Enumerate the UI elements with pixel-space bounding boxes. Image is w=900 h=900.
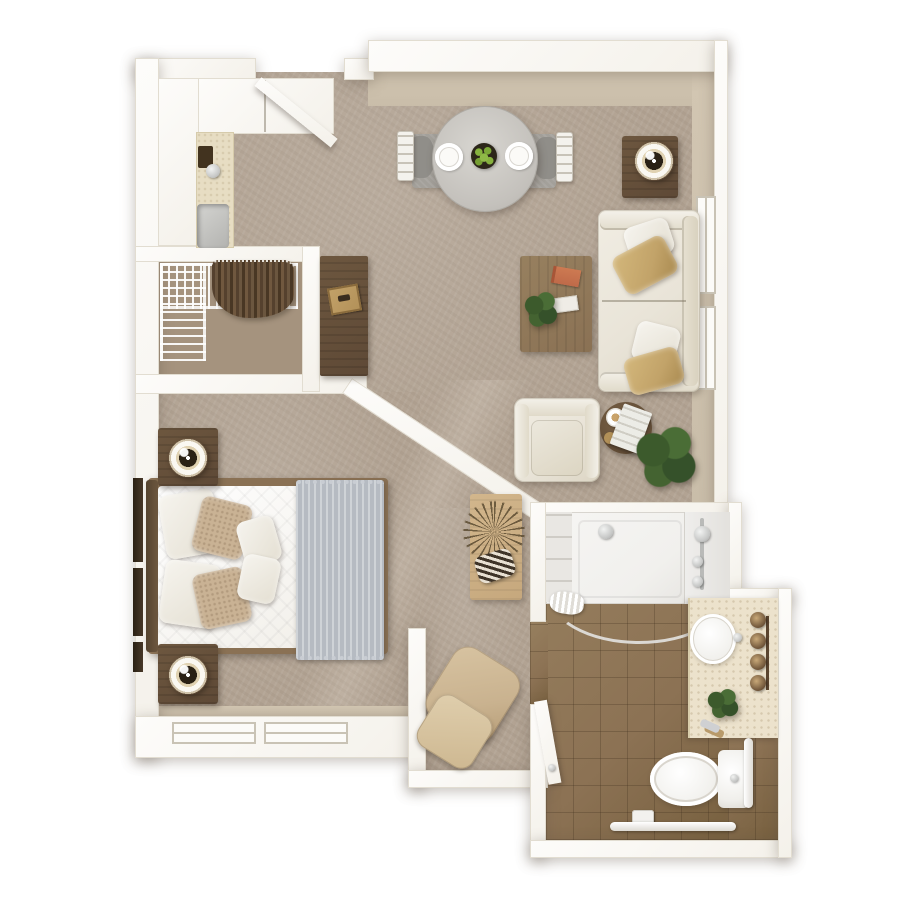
vanity-faucet bbox=[733, 633, 742, 642]
wall-art-frame-3 bbox=[133, 642, 143, 672]
coffee-table-plant bbox=[524, 290, 558, 330]
shower-drain bbox=[598, 524, 613, 539]
toilet-flush-button bbox=[730, 774, 738, 782]
window-bedroom-1 bbox=[172, 722, 256, 744]
wall-right bbox=[714, 40, 728, 510]
sofa-cushion-seam bbox=[602, 300, 686, 302]
grab-bar-right bbox=[744, 738, 753, 808]
toilet-bowl bbox=[650, 752, 722, 806]
bed-gray-throw bbox=[296, 480, 384, 660]
shower-head bbox=[694, 526, 710, 542]
armchair-arm-right bbox=[585, 404, 598, 478]
hanging-clothes bbox=[212, 260, 294, 318]
dining-chair-right-back bbox=[556, 132, 573, 182]
grab-bar-bottom bbox=[610, 822, 736, 831]
floor-plant bbox=[634, 424, 698, 492]
bed-headboard bbox=[146, 480, 158, 652]
kitchen-lower-cabinet bbox=[158, 78, 200, 246]
wall-closet-bedroom bbox=[135, 374, 367, 394]
bathroom-door-handle bbox=[548, 764, 555, 771]
wall-art-frame-1 bbox=[133, 478, 143, 562]
floorplan-canvas bbox=[0, 0, 900, 900]
media-console bbox=[320, 256, 368, 376]
plate-right bbox=[505, 142, 533, 170]
wall-art-frame-2 bbox=[133, 568, 143, 636]
wall-face-top bbox=[368, 70, 706, 106]
vanity-plant bbox=[706, 688, 740, 720]
faucet-knob bbox=[206, 164, 220, 178]
plate-left bbox=[435, 143, 463, 171]
wall-closet-right bbox=[302, 246, 320, 392]
closet-shelf-left bbox=[160, 263, 206, 361]
sconce-light-1 bbox=[750, 612, 766, 628]
sconce-bar bbox=[766, 616, 769, 690]
dining-chair-left-back bbox=[397, 131, 414, 181]
wall-top-living bbox=[368, 40, 726, 72]
armchair-seat bbox=[531, 420, 583, 476]
fruit-bowl-apples bbox=[471, 143, 497, 169]
armchair-arm-left bbox=[516, 404, 529, 478]
sconce-light-4 bbox=[750, 675, 766, 691]
sconce-light-3 bbox=[750, 654, 766, 670]
nightstand-lamp-top bbox=[168, 438, 208, 478]
window-bedroom-2 bbox=[264, 722, 348, 744]
sconce-light-2 bbox=[750, 633, 766, 649]
kitchen-sink bbox=[197, 204, 229, 248]
vanity-sink bbox=[690, 614, 736, 664]
nightstand-lamp-bottom bbox=[168, 655, 208, 695]
table-lamp bbox=[634, 141, 674, 181]
wall-bath-right-lower bbox=[778, 588, 792, 858]
wall-bath-left-upper bbox=[530, 502, 546, 622]
wall-bath-bottom bbox=[530, 840, 792, 858]
